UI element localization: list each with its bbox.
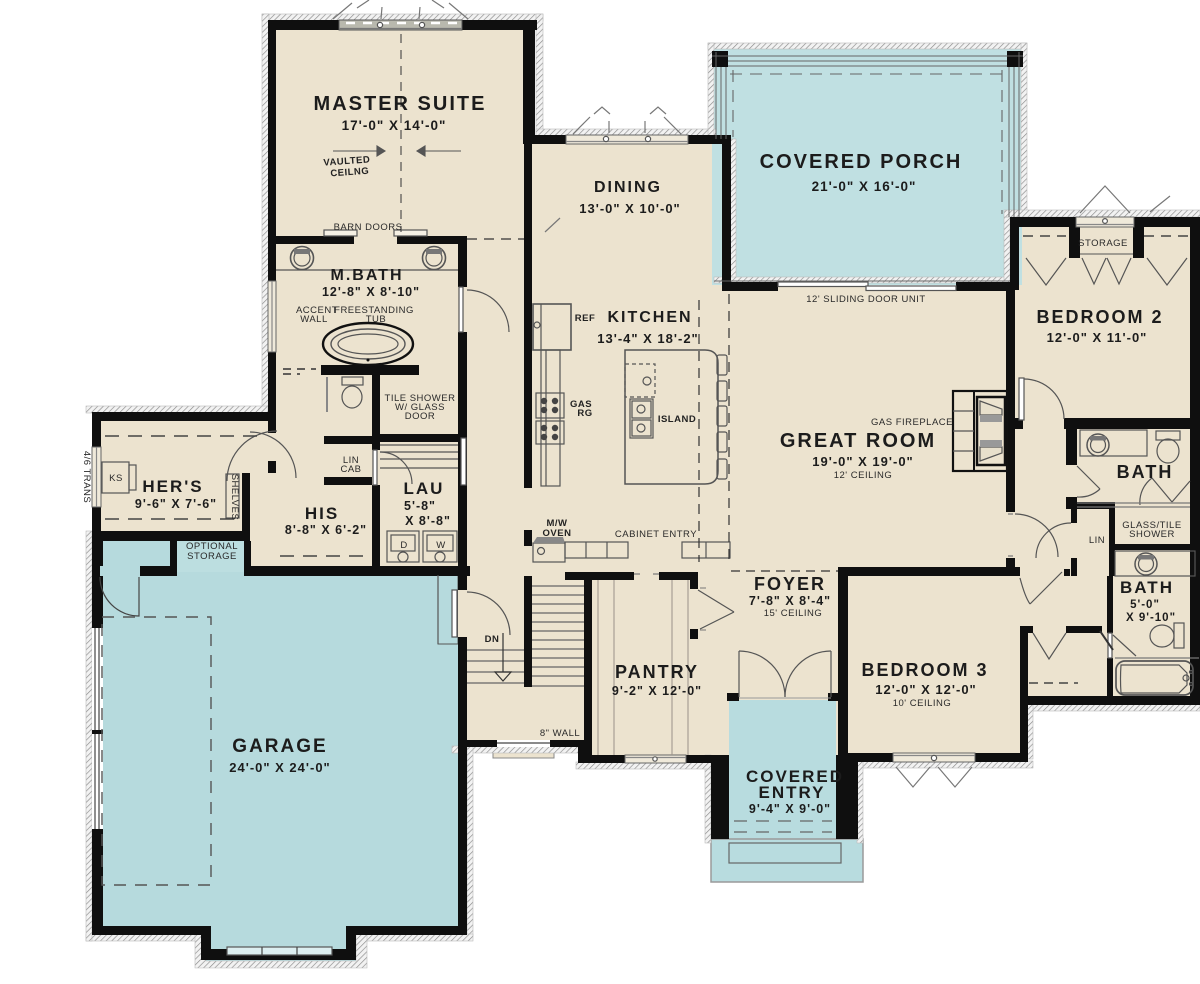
svg-text:GREAT ROOM: GREAT ROOM bbox=[780, 430, 936, 452]
svg-text:MASTER SUITE: MASTER SUITE bbox=[314, 93, 487, 115]
svg-text:BATH: BATH bbox=[1117, 462, 1174, 482]
svg-text:24'-0" X 24'-0": 24'-0" X 24'-0" bbox=[229, 760, 330, 775]
svg-text:M.BATH: M.BATH bbox=[330, 267, 403, 284]
svg-text:9'-6" X 7'-6": 9'-6" X 7'-6" bbox=[135, 497, 217, 511]
svg-text:9'-4" X 9'-0": 9'-4" X 9'-0" bbox=[749, 802, 831, 816]
svg-text:WALL: WALL bbox=[300, 314, 328, 325]
svg-text:7'-8" X 8'-4": 7'-8" X 8'-4" bbox=[749, 594, 831, 608]
svg-text:STORAGE: STORAGE bbox=[187, 551, 237, 562]
svg-text:HIS: HIS bbox=[305, 504, 339, 523]
svg-text:SHOWER: SHOWER bbox=[1129, 529, 1175, 540]
svg-text:8" WALL: 8" WALL bbox=[540, 728, 580, 739]
svg-text:W: W bbox=[436, 540, 445, 551]
svg-text:REF: REF bbox=[575, 313, 596, 324]
svg-text:DN: DN bbox=[485, 634, 500, 645]
svg-text:D: D bbox=[400, 540, 407, 551]
svg-text:BEDROOM 3: BEDROOM 3 bbox=[861, 660, 988, 680]
svg-text:13'-4" X 18'-2": 13'-4" X 18'-2" bbox=[597, 331, 698, 346]
svg-text:LIN: LIN bbox=[1089, 535, 1105, 546]
svg-text:ISLAND: ISLAND bbox=[658, 414, 696, 425]
svg-text:DINING: DINING bbox=[594, 179, 662, 196]
svg-text:9'-2" X 12'-0": 9'-2" X 12'-0" bbox=[612, 684, 702, 698]
svg-text:19'-0" X 19'-0": 19'-0" X 19'-0" bbox=[812, 454, 913, 469]
svg-text:GARAGE: GARAGE bbox=[232, 736, 327, 757]
svg-text:OVEN: OVEN bbox=[543, 528, 572, 539]
svg-text:KITCHEN: KITCHEN bbox=[607, 309, 692, 326]
svg-text:KS: KS bbox=[109, 473, 123, 484]
svg-text:GAS FIREPLACE: GAS FIREPLACE bbox=[871, 417, 953, 428]
svg-text:12' SLIDING DOOR UNIT: 12' SLIDING DOOR UNIT bbox=[806, 294, 925, 305]
svg-text:CABINET ENTRY: CABINET ENTRY bbox=[615, 529, 697, 540]
svg-text:HER'S: HER'S bbox=[142, 477, 203, 496]
svg-text:LAU: LAU bbox=[404, 479, 445, 498]
svg-text:5'-8": 5'-8" bbox=[404, 499, 436, 513]
svg-text:TUB: TUB bbox=[366, 314, 387, 325]
svg-text:BARN DOORS: BARN DOORS bbox=[334, 222, 403, 233]
svg-text:12'-8" X 8'-10": 12'-8" X 8'-10" bbox=[322, 285, 420, 299]
svg-text:BEDROOM 2: BEDROOM 2 bbox=[1036, 307, 1163, 327]
svg-text:8'-8" X 6'-2": 8'-8" X 6'-2" bbox=[285, 523, 367, 537]
svg-text:PANTRY: PANTRY bbox=[615, 662, 699, 682]
svg-text:X 8'-8": X 8'-8" bbox=[405, 514, 451, 528]
svg-text:ENTRY: ENTRY bbox=[759, 783, 826, 802]
svg-text:BATH: BATH bbox=[1120, 578, 1174, 597]
svg-text:X 9'-10": X 9'-10" bbox=[1126, 612, 1176, 624]
svg-text:FOYER: FOYER bbox=[754, 574, 826, 594]
svg-text:17'-0" X 14'-0": 17'-0" X 14'-0" bbox=[342, 118, 447, 133]
svg-text:4/6 TRANS: 4/6 TRANS bbox=[81, 451, 92, 503]
svg-text:12'-0" X 11'-0": 12'-0" X 11'-0" bbox=[1047, 330, 1148, 345]
svg-text:STORAGE: STORAGE bbox=[1078, 238, 1128, 249]
svg-text:10' CEILING: 10' CEILING bbox=[893, 698, 952, 709]
svg-text:DOOR: DOOR bbox=[405, 411, 436, 422]
svg-text:CAB: CAB bbox=[340, 464, 361, 475]
svg-text:12'-0" X 12'-0": 12'-0" X 12'-0" bbox=[875, 682, 976, 697]
svg-text:RG: RG bbox=[577, 408, 592, 419]
svg-text:21'-0" X 16'-0": 21'-0" X 16'-0" bbox=[812, 179, 917, 194]
svg-text:13'-0" X 10'-0": 13'-0" X 10'-0" bbox=[579, 201, 680, 216]
svg-text:12' CEILING: 12' CEILING bbox=[834, 470, 893, 481]
svg-text:SHELVES: SHELVES bbox=[229, 474, 240, 521]
svg-text:5'-0": 5'-0" bbox=[1130, 599, 1160, 611]
svg-text:COVERED PORCH: COVERED PORCH bbox=[760, 151, 963, 173]
svg-text:15' CEILING: 15' CEILING bbox=[764, 608, 823, 619]
